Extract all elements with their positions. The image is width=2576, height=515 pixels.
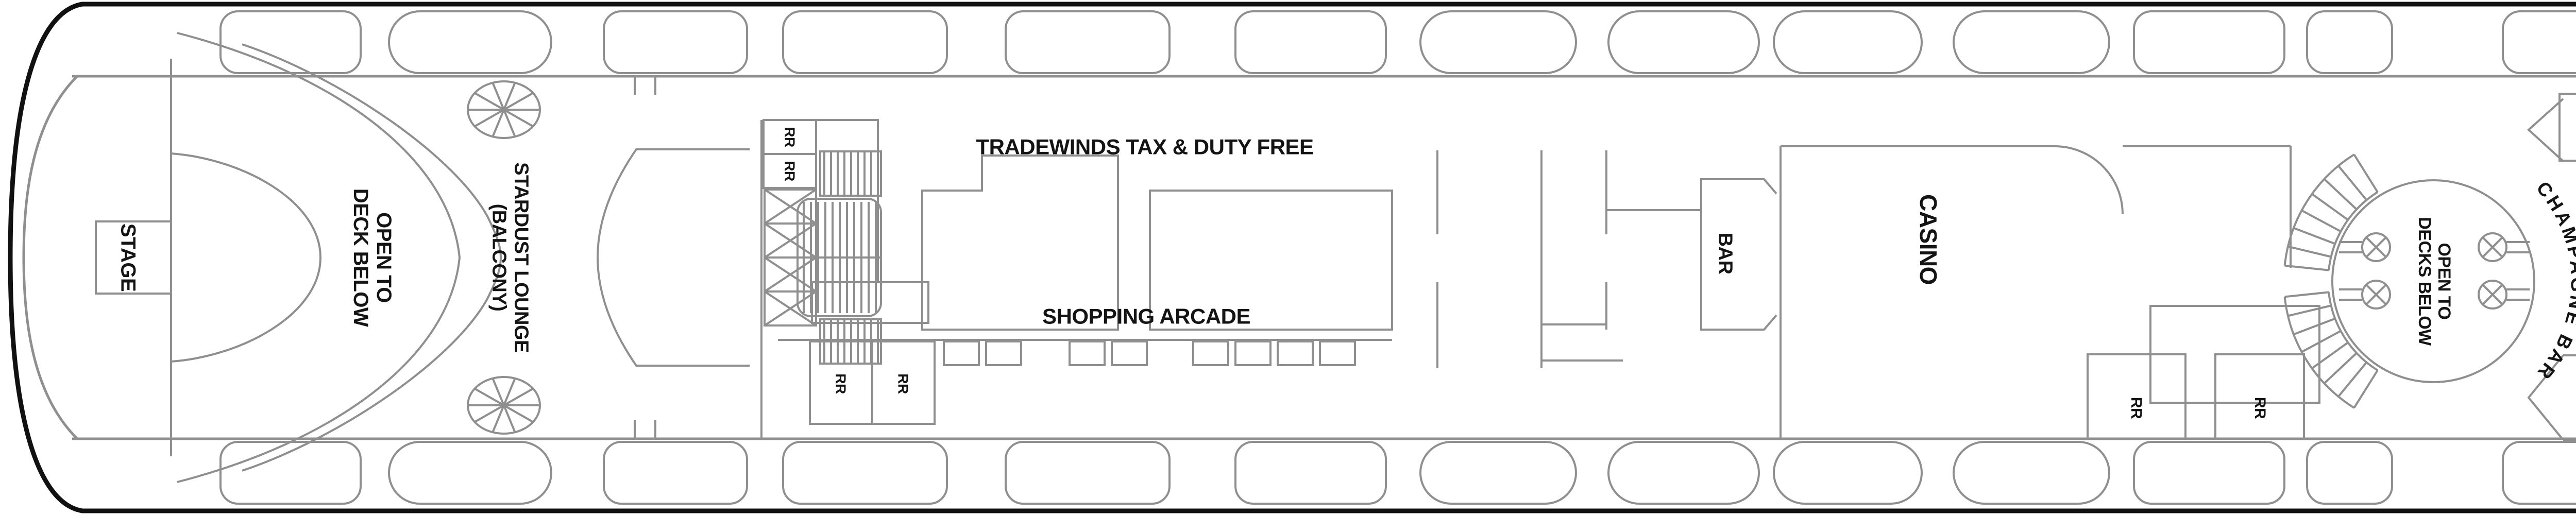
shopping-arcade-label: SHOPPING ARCADE (1042, 304, 1250, 328)
lifeboat-icon (1774, 442, 1922, 504)
lifeboat-icon (604, 11, 747, 73)
casino-walls (1781, 146, 2319, 439)
lifeboat-icon (783, 442, 947, 504)
lifeboat-icon (1006, 442, 1170, 504)
lifeboat-icon (2503, 442, 2576, 504)
restroom-label: RR (782, 161, 798, 181)
shop-stall (1193, 341, 1228, 365)
lifeboat-icon (783, 11, 947, 73)
lifeboat-icon (1774, 11, 1922, 73)
lifeboat-icon (2134, 11, 2284, 73)
lifeboat-icon (1608, 442, 1759, 504)
shop-stall (1278, 341, 1313, 365)
shop-stall (986, 341, 1021, 365)
lifeboat-icon (2503, 11, 2576, 73)
restroom-label: RR (2251, 397, 2268, 419)
lifeboat-icon (1235, 11, 1386, 73)
restroom-label: RR (895, 373, 911, 393)
shop-stall (1320, 341, 1355, 365)
open-to-decks-below-label: OPEN TO DECKS BELOW (2415, 217, 2454, 346)
inner-deck-line (24, 76, 2576, 439)
svg-text:CHAMPAGNE BAR: CHAMPAGNE BAR (2532, 178, 2576, 385)
lifeboat-icon (604, 442, 747, 504)
stardust-lounge-label: STARDUST LOUNGE (BALCONY) (488, 162, 532, 353)
lifeboat-icon (2134, 442, 2284, 504)
restroom-label: RR (2127, 397, 2145, 419)
champagne-bar-label: CHAMPAGNE BAR (2532, 178, 2576, 385)
lifeboat-icon (389, 442, 551, 504)
hull-outline (10, 4, 2576, 511)
lifeboat-icon (1954, 442, 2109, 504)
lifeboat-icon (1006, 11, 1170, 73)
tradewinds-label: TRADEWINDS TAX & DUTY FREE (976, 134, 1313, 159)
lifeboat-icon (1235, 442, 1386, 504)
casino-label: CASINO (1914, 194, 1941, 285)
curved-stairs-icon (2329, 292, 2378, 370)
lifeboat-icon (1954, 11, 2109, 73)
shop-stall (1235, 341, 1270, 365)
shop-stall (1112, 341, 1147, 365)
stage-aft-label: STAGE (116, 224, 140, 291)
curved-stairs-icon (2329, 192, 2378, 270)
lifeboat-icon (1420, 11, 1576, 73)
lifeboat-icon (2307, 442, 2392, 504)
deck-plan: CHAMPAGNE BAR STAGE OPEN TO DECK BELOW S… (0, 0, 2576, 515)
lifeboat-icon (1608, 11, 1759, 73)
restroom-label: RR (833, 373, 849, 393)
atrium-walls (2332, 94, 2576, 440)
lifeboat-icon (2307, 11, 2392, 73)
lifeboat-icon (389, 11, 551, 73)
restroom-label: RR (782, 127, 798, 147)
shop-stall (1070, 341, 1105, 365)
open-to-deck-below-label: OPEN TO DECK BELOW (349, 188, 395, 327)
bar-label: BAR (1714, 233, 1736, 274)
lifeboat-icon (1420, 442, 1576, 504)
shop-stall (944, 341, 979, 365)
